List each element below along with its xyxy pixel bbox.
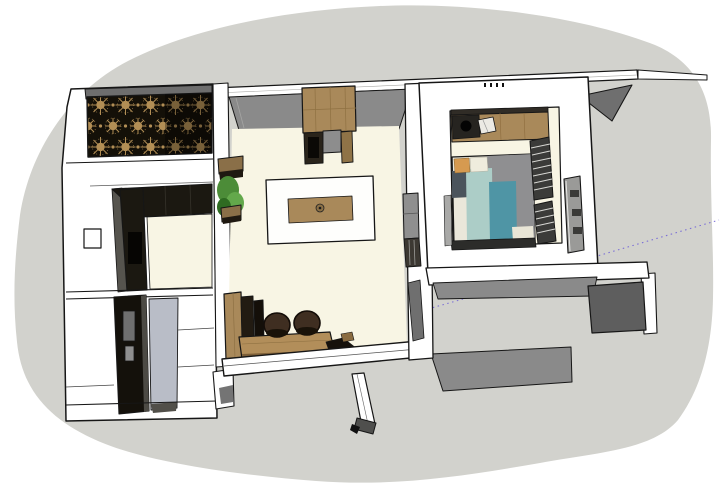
wall-outlet[interactable] — [84, 229, 101, 248]
pillow-orange — [454, 158, 470, 173]
terrace-wall-face[interactable] — [588, 282, 646, 333]
monitor-left[interactable] — [241, 296, 254, 342]
door-mark-2 — [572, 209, 581, 216]
door-mark-1 — [570, 190, 579, 197]
model-viewport[interactable] — [0, 0, 721, 494]
bedroom[interactable] — [419, 77, 598, 274]
door-mark-3 — [573, 227, 582, 234]
bed-light-teal-blanket — [466, 168, 493, 242]
desk-clutter-wood[interactable] — [341, 332, 354, 342]
vanity[interactable] — [451, 107, 549, 142]
gray-floor-mat[interactable] — [149, 298, 178, 410]
cabinet-handle[interactable] — [123, 311, 135, 341]
sink-bowl[interactable] — [461, 121, 472, 132]
vanity-chair[interactable] — [478, 117, 496, 134]
monitor-right[interactable] — [254, 300, 264, 340]
bowl-center — [319, 207, 322, 210]
appliance-recess[interactable] — [128, 232, 142, 264]
screen-shade — [165, 93, 212, 155]
hall-cabinet-dark[interactable] — [404, 238, 421, 267]
kitchen-floor[interactable] — [147, 214, 212, 289]
pillow-cream — [470, 157, 488, 172]
bed[interactable] — [451, 154, 536, 250]
stub-wall-shadow — [219, 385, 233, 404]
wood-side-panel[interactable] — [341, 131, 353, 163]
chair-left-seat — [266, 329, 288, 337]
render-canvas — [0, 0, 721, 494]
counter-box[interactable] — [323, 130, 341, 153]
hall-cabinet[interactable] — [403, 193, 419, 239]
floor-sliver — [444, 195, 452, 246]
appliance-door[interactable] — [308, 137, 319, 158]
chair-right-seat — [296, 327, 318, 335]
left-wing[interactable] — [62, 84, 234, 421]
cabinet-lock[interactable] — [125, 346, 134, 361]
